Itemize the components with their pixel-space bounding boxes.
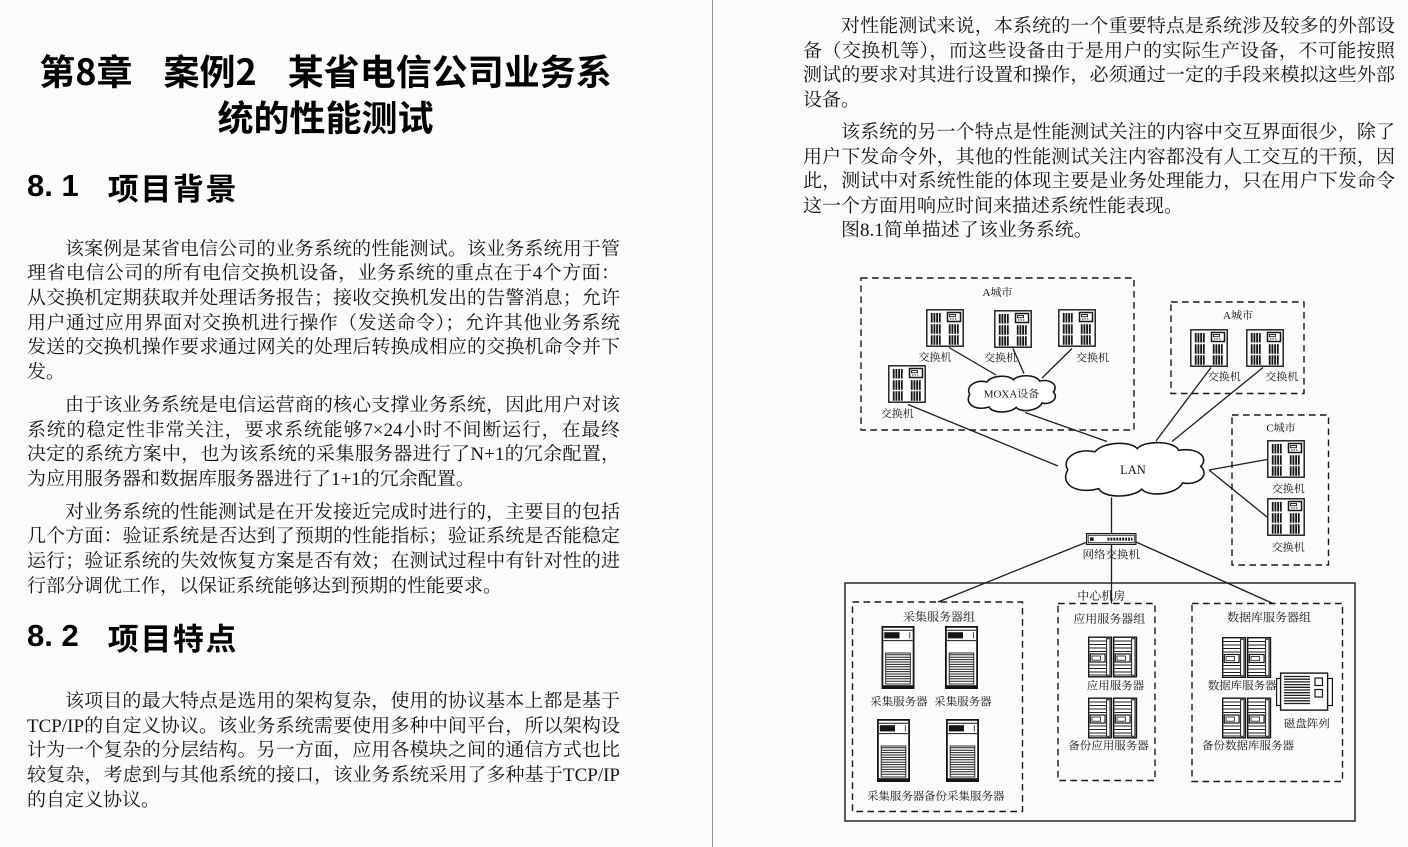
svg-text:数据库服务器组: 数据库服务器组 <box>1227 611 1311 625</box>
svg-text:备份数据库服务器: 备份数据库服务器 <box>1202 740 1294 753</box>
svg-text:交换机: 交换机 <box>1272 541 1305 554</box>
svg-text:应用服务器组: 应用服务器组 <box>1073 612 1145 626</box>
svg-text:A城市: A城市 <box>1223 309 1253 322</box>
svg-text:应用服务器: 应用服务器 <box>1087 680 1145 693</box>
svg-text:交换机: 交换机 <box>1265 371 1298 384</box>
svg-text:采集服务器: 采集服务器 <box>870 696 928 709</box>
svg-text:磁盘阵列: 磁盘阵列 <box>1284 718 1330 731</box>
svg-text:采集服务器组: 采集服务器组 <box>903 610 975 624</box>
svg-text:采集服务器: 采集服务器 <box>867 790 925 803</box>
svg-text:交换机: 交换机 <box>1272 483 1305 496</box>
svg-text:交换机: 交换机 <box>1208 371 1241 384</box>
svg-text:MOXA设备: MOXA设备 <box>984 388 1040 401</box>
svg-text:备份应用服务器: 备份应用服务器 <box>1068 740 1149 753</box>
svg-text:备份采集服务器: 备份采集服务器 <box>924 790 1005 803</box>
svg-text:数据库服务器: 数据库服务器 <box>1208 680 1277 693</box>
svg-text:交换机: 交换机 <box>919 351 952 364</box>
svg-text:网络交换机: 网络交换机 <box>1083 549 1141 562</box>
svg-text:LAN: LAN <box>1120 463 1146 477</box>
svg-text:交换机: 交换机 <box>1076 352 1109 365</box>
svg-text:交换机: 交换机 <box>984 352 1017 365</box>
svg-text:交换机: 交换机 <box>881 408 914 421</box>
svg-text:A城市: A城市 <box>983 286 1013 299</box>
svg-text:采集服务器: 采集服务器 <box>934 696 992 709</box>
svg-text:C城市: C城市 <box>1266 422 1295 435</box>
svg-text:中心机房: 中心机房 <box>1077 589 1125 603</box>
